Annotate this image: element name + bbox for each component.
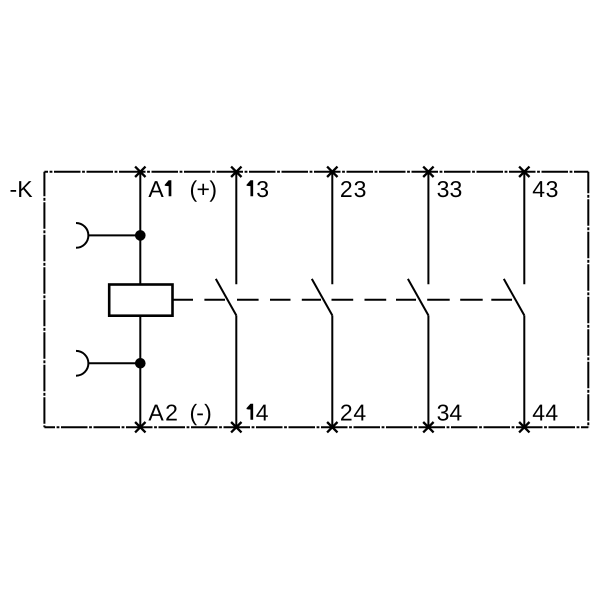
svg-text:24: 24	[340, 400, 367, 426]
svg-text:A2: A2	[148, 400, 177, 426]
svg-text:43: 43	[532, 176, 558, 202]
svg-text:3: 3	[256, 176, 269, 202]
svg-text:34: 34	[437, 400, 463, 426]
svg-text:-K: -K	[10, 176, 34, 202]
svg-text:4: 4	[256, 400, 269, 426]
svg-text:44: 44	[532, 400, 558, 426]
svg-text:23: 23	[340, 176, 366, 202]
svg-text:33: 33	[437, 176, 463, 202]
svg-text:(-): (-)	[190, 400, 212, 426]
svg-text:(+): (+)	[190, 176, 218, 202]
svg-text:A: A	[148, 176, 164, 202]
